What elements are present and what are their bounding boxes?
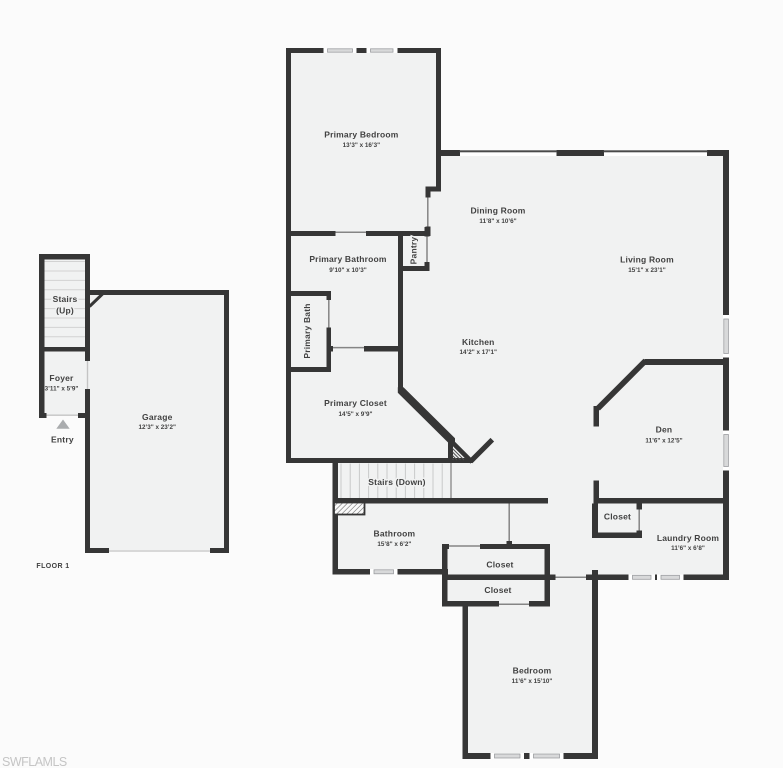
svg-text:Bedroom: Bedroom — [513, 665, 552, 675]
svg-text:Entry: Entry — [51, 434, 74, 444]
svg-text:FLOOR 1: FLOOR 1 — [36, 563, 69, 570]
svg-text:Closet: Closet — [484, 585, 511, 595]
svg-text:Bathroom: Bathroom — [374, 528, 416, 538]
svg-text:(Up): (Up) — [56, 305, 74, 315]
svg-text:Kitchen: Kitchen — [462, 337, 495, 347]
svg-text:Primary Bath: Primary Bath — [302, 303, 312, 358]
svg-text:Pantry: Pantry — [408, 237, 418, 265]
svg-text:11’6" x 6’8": 11’6" x 6’8" — [671, 545, 705, 552]
svg-text:Living Room: Living Room — [620, 254, 674, 264]
svg-text:13’3" x 16’3": 13’3" x 16’3" — [343, 142, 380, 149]
svg-text:Primary Bathroom: Primary Bathroom — [309, 254, 387, 264]
svg-text:Closet: Closet — [486, 559, 513, 569]
svg-text:SWFLAMLS: SWFLAMLS — [2, 755, 67, 768]
svg-text:11’8" x 10’6": 11’8" x 10’6" — [479, 218, 516, 225]
svg-text:Foyer: Foyer — [49, 373, 74, 383]
svg-text:11’6" x 12’5": 11’6" x 12’5" — [645, 438, 682, 445]
svg-text:Stairs: Stairs — [53, 294, 78, 304]
svg-text:3’11" x 5’9": 3’11" x 5’9" — [45, 386, 79, 393]
svg-text:Primary Bedroom: Primary Bedroom — [324, 130, 399, 140]
svg-text:14’2" x 17’1": 14’2" x 17’1" — [460, 349, 497, 356]
svg-text:Closet: Closet — [604, 511, 631, 521]
svg-text:Laundry Room: Laundry Room — [657, 533, 720, 543]
svg-text:11’6" x 15’10": 11’6" x 15’10" — [512, 678, 553, 685]
svg-text:15’8" x 6’2": 15’8" x 6’2" — [377, 541, 411, 548]
svg-text:9’10" x 10’3": 9’10" x 10’3" — [329, 267, 366, 274]
svg-text:12’3" x 23’2": 12’3" x 23’2" — [139, 424, 176, 431]
svg-text:Stairs (Down): Stairs (Down) — [368, 477, 425, 487]
svg-text:Den: Den — [656, 424, 673, 434]
svg-text:15’1" x 23’1": 15’1" x 23’1" — [628, 267, 665, 274]
svg-text:14’5" x 9’9": 14’5" x 9’9" — [339, 411, 373, 418]
svg-text:Primary Closet: Primary Closet — [324, 398, 387, 408]
svg-text:Garage: Garage — [142, 412, 173, 422]
svg-text:Dining Room: Dining Room — [470, 205, 525, 215]
